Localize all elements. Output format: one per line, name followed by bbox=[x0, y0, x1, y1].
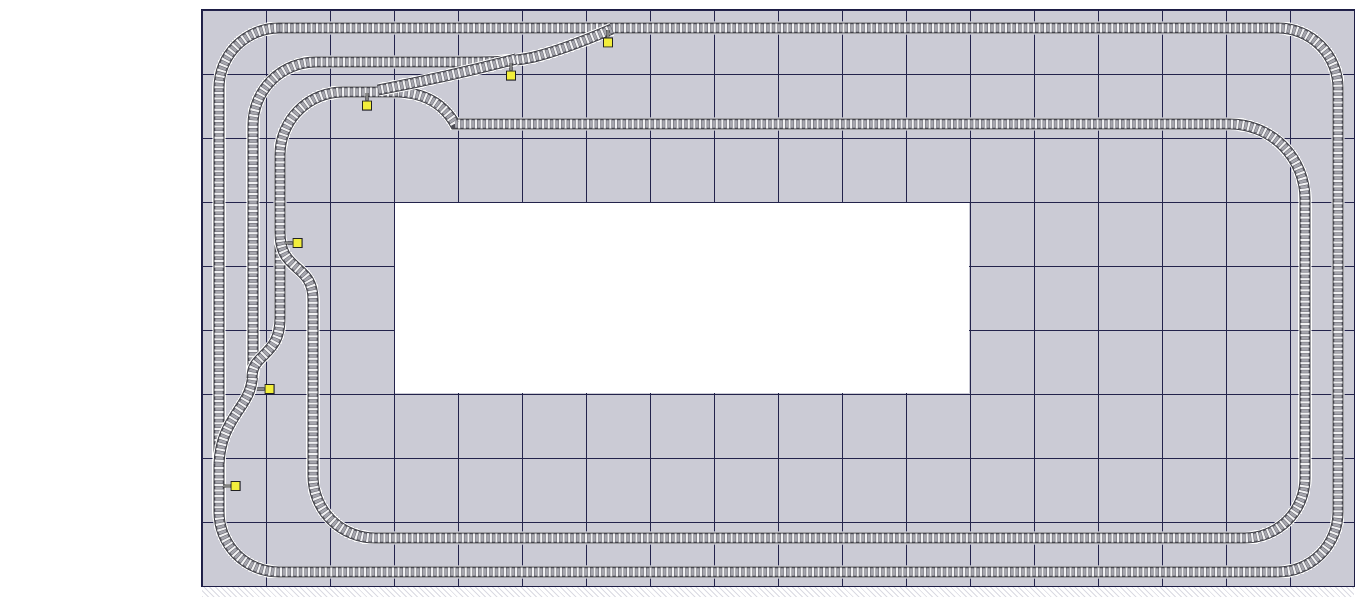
switch-stand-lamp bbox=[363, 101, 372, 110]
track-inner-loop[interactable] bbox=[280, 92, 1305, 538]
track-inner-loop[interactable] bbox=[280, 92, 1305, 538]
track-outer-loop[interactable] bbox=[219, 28, 1338, 572]
switch-stand-lamp bbox=[293, 239, 302, 248]
switch-stand-lamp bbox=[604, 38, 613, 47]
track-outer-loop[interactable] bbox=[219, 28, 1338, 572]
switch-stand-lamp bbox=[231, 482, 240, 491]
track-inner-loop[interactable] bbox=[280, 92, 1305, 538]
track-layer bbox=[0, 0, 1368, 600]
switch-stand-lamp bbox=[507, 71, 516, 80]
track-plan-canvas[interactable] bbox=[0, 0, 1368, 600]
track-outer-loop[interactable] bbox=[219, 28, 1338, 572]
tracks-group bbox=[219, 28, 1338, 572]
track-outer-loop[interactable] bbox=[219, 28, 1338, 572]
switch-stand-marker[interactable] bbox=[223, 482, 240, 491]
track-inner-loop[interactable] bbox=[280, 92, 1305, 538]
track-inner-loop[interactable] bbox=[280, 92, 1305, 538]
switch-stand-marker[interactable] bbox=[257, 385, 274, 394]
switch-stand-lamp bbox=[265, 385, 274, 394]
track-outer-loop[interactable] bbox=[219, 28, 1338, 572]
